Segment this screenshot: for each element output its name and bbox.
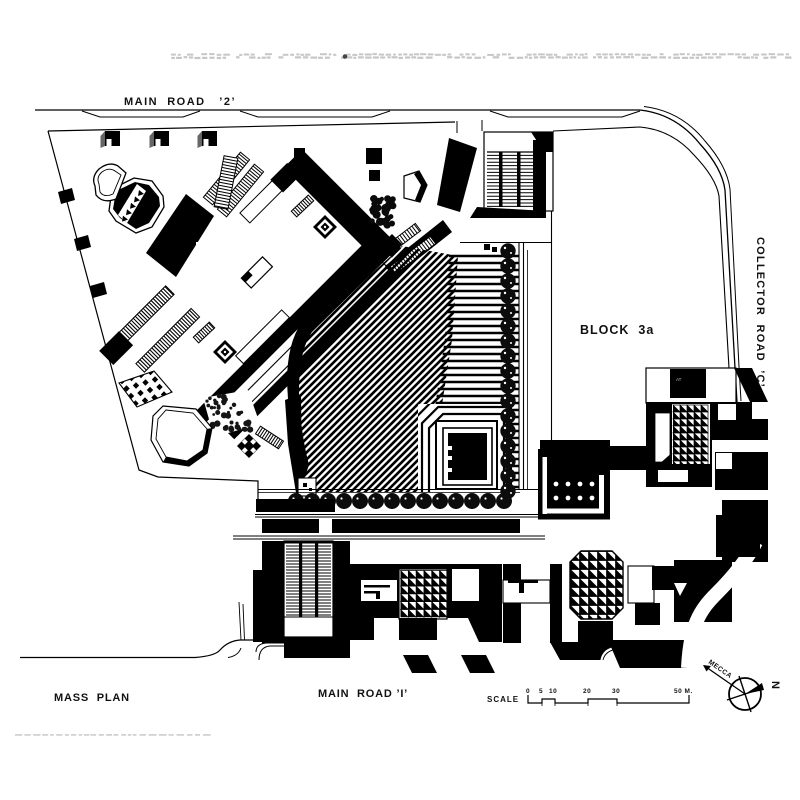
svg-text:30: 30 bbox=[612, 688, 620, 695]
svg-text:MASS PLAN: MASS PLAN bbox=[54, 692, 130, 704]
svg-text:10: 10 bbox=[549, 688, 557, 695]
svg-text:0: 0 bbox=[526, 688, 530, 695]
svg-text:MAIN ROAD ’2’: MAIN ROAD ’2’ bbox=[124, 96, 236, 108]
svg-text:BLOCK 3a: BLOCK 3a bbox=[580, 323, 654, 337]
svg-text:N: N bbox=[769, 681, 781, 689]
svg-text:COLLECTOR ROAD ’C’: COLLECTOR ROAD ’C’ bbox=[754, 237, 766, 388]
svg-text:50 M.: 50 M. bbox=[674, 688, 693, 695]
svg-text:SCALE: SCALE bbox=[487, 695, 519, 704]
svg-text:AT: AT bbox=[676, 377, 682, 382]
svg-text:MAIN ROAD ’I’: MAIN ROAD ’I’ bbox=[318, 688, 408, 700]
svg-text:5: 5 bbox=[539, 688, 543, 695]
svg-text:20: 20 bbox=[583, 688, 591, 695]
